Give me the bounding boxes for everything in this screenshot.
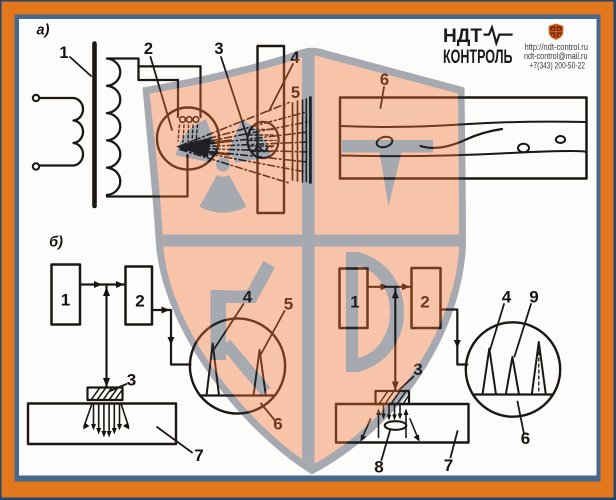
svg-text:б): б) [49, 235, 63, 251]
svg-text:3: 3 [214, 40, 223, 58]
svg-text:6: 6 [521, 429, 530, 448]
svg-text:7: 7 [194, 446, 203, 465]
svg-text:3: 3 [127, 371, 136, 390]
svg-text:7: 7 [444, 456, 453, 475]
svg-text:1: 1 [59, 44, 68, 62]
svg-text:1: 1 [61, 291, 70, 310]
svg-text:НДТ: НДТ [443, 25, 482, 47]
svg-text:КОНТРОЛЬ: КОНТРОЛЬ [443, 46, 513, 68]
svg-text:+7(343) 200-50-22: +7(343) 200-50-22 [530, 61, 586, 71]
svg-text:а): а) [37, 23, 50, 39]
svg-text:2: 2 [144, 40, 153, 58]
svg-text:2: 2 [135, 292, 144, 311]
